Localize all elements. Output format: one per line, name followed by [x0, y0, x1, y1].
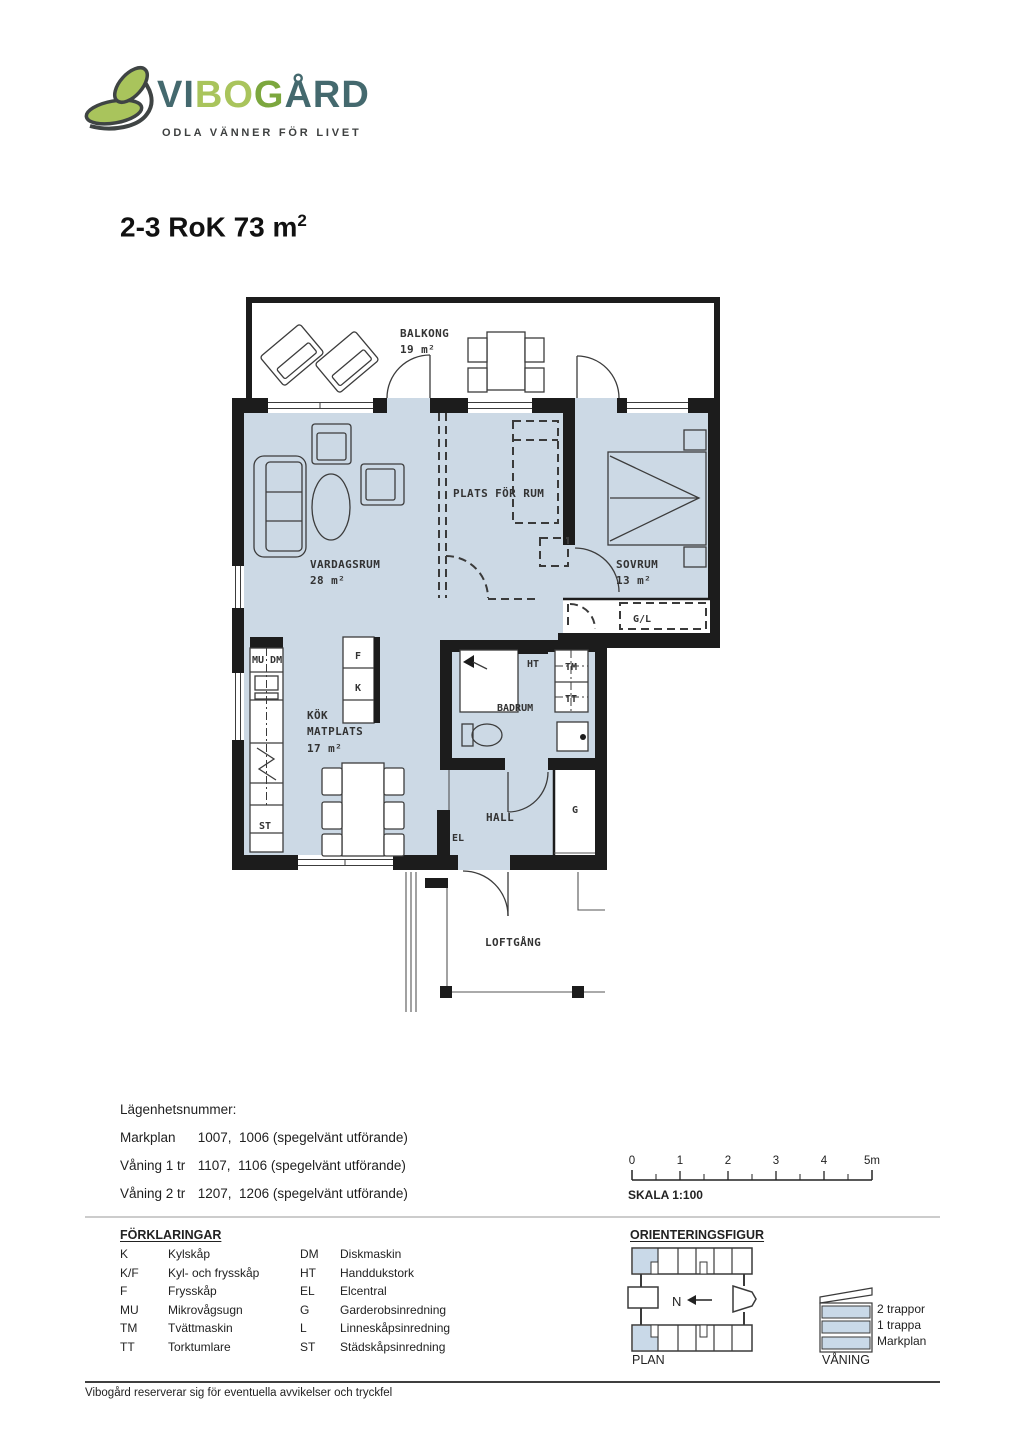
legend-desc: Elcentral — [340, 1284, 387, 1298]
legend-desc: Kyl- och frysskåp — [168, 1266, 259, 1280]
brand-part-vi: VI — [157, 74, 195, 116]
f-marker: F — [355, 651, 361, 662]
legend-code: DM — [300, 1245, 340, 1264]
legend-code: K — [120, 1245, 168, 1264]
legend-code: TM — [120, 1319, 168, 1338]
title-superscript: 2 — [297, 211, 306, 230]
north-arrow-icon: N — [672, 1294, 712, 1309]
apartment-ids: 1207, 1206 (spegelvänt utförande) — [198, 1186, 408, 1201]
apartment-row: Våning 1 tr 1107, 1106 (spegelvänt utför… — [120, 1158, 408, 1173]
legend-column-left: KKylskåp K/FKyl- och frysskåp FFrysskåp … — [120, 1245, 259, 1356]
legend-code: F — [120, 1282, 168, 1301]
sovrum-area: 13 m² — [616, 574, 651, 587]
legend-row: MUMikrovågsugn — [120, 1301, 259, 1320]
page-title: 2-3 RoK 73 m2 — [120, 211, 307, 243]
balkong-area: 19 m² — [400, 343, 435, 356]
legend-row: FFrysskåp — [120, 1282, 259, 1301]
scale-tick-2: 2 — [725, 1155, 731, 1167]
scale-tick-0: 0 — [629, 1155, 635, 1167]
legend-code: ST — [300, 1338, 340, 1357]
elevation-caption: VÅNING — [822, 1353, 870, 1367]
elevation-figure — [820, 1288, 872, 1352]
legend-code: TT — [120, 1338, 168, 1357]
apartment-ids: 1107, 1106 (spegelvänt utförande) — [198, 1158, 406, 1173]
vardagsrum-area: 28 m² — [310, 574, 345, 587]
balkong-label: BALKONG — [400, 327, 449, 340]
matplats-label: MATPLATS — [307, 725, 363, 738]
gl-marker: G/L — [633, 614, 651, 625]
kok-label: KÖK — [307, 708, 328, 722]
orientation-plan-caption: PLAN — [632, 1353, 665, 1367]
legend-column-right: DMDiskmaskin HTHanddukstork ELElcentral … — [300, 1245, 450, 1356]
legend-desc: Handdukstork — [340, 1266, 414, 1280]
orientation-heading: ORIENTERINGSFIGUR — [630, 1228, 764, 1242]
scale-bar: 0 1 2 3 4 5m — [629, 1155, 880, 1180]
brand-tagline: ODLA VÄNNER FÖR LIVET — [162, 127, 362, 139]
legend-desc: Städskåpsinredning — [340, 1340, 445, 1354]
apartment-numbers-heading: Lägenhetsnummer: — [120, 1102, 408, 1117]
legend-row: K/FKyl- och frysskåp — [120, 1264, 259, 1283]
loftgang-label: LOFTGÅNG — [485, 936, 541, 949]
legend-row: ELElcentral — [300, 1282, 450, 1301]
mu-dm-marker: MU DM — [252, 655, 282, 666]
legend-heading: FÖRKLARINGAR — [120, 1228, 221, 1242]
elevation-floor-1: 1 trappa — [877, 1318, 921, 1332]
legend-row: DMDiskmaskin — [300, 1245, 450, 1264]
legend-code: K/F — [120, 1264, 168, 1283]
sovrum-label: SOVRUM — [616, 558, 658, 571]
legend-desc: Frysskåp — [168, 1284, 217, 1298]
badrum-label: BADRUM — [497, 703, 533, 714]
plats-for-rum-label: PLATS FÖR RUM — [453, 486, 544, 500]
legend-row: TMTvättmaskin — [120, 1319, 259, 1338]
floorplan-page: BALKONG 19 m² VARDAGSRUM 28 m² PLATS FÖR… — [0, 0, 1024, 1449]
elevation-floor-2: 2 trappor — [877, 1302, 925, 1316]
el-marker: EL — [452, 833, 464, 844]
footer-disclaimer: Vibogård reserverar sig för eventuella a… — [85, 1387, 392, 1399]
legend-code: L — [300, 1319, 340, 1338]
scale-tick-1: 1 — [677, 1155, 683, 1167]
brand-part-bo: BO — [195, 74, 254, 116]
kok-area: 17 m² — [307, 742, 342, 755]
legend-row: HTHanddukstork — [300, 1264, 450, 1283]
tm-marker: TM — [565, 662, 577, 673]
k-marker: K — [355, 683, 361, 694]
scale-tick-5: 5m — [864, 1155, 880, 1167]
st-marker: ST — [259, 821, 271, 832]
legend-desc: Diskmaskin — [340, 1247, 401, 1261]
legend-desc: Garderobsinredning — [340, 1303, 446, 1317]
legend-desc: Linneskåpsinredning — [340, 1321, 450, 1335]
scale-tick-3: 3 — [773, 1155, 779, 1167]
orientation-figure: N — [628, 1248, 756, 1351]
scale-caption: SKALA 1:100 — [628, 1188, 703, 1202]
legend-row: TTTorktumlare — [120, 1338, 259, 1357]
elevation-floor-0: Markplan — [877, 1334, 926, 1348]
legend-code: MU — [120, 1301, 168, 1320]
apartment-row: Markplan 1007, 1006 (spegelvänt utförand… — [120, 1130, 408, 1145]
apartment-row: Våning 2 tr 1207, 1206 (spegelvänt utför… — [120, 1186, 408, 1201]
ht-marker: HT — [527, 659, 539, 670]
g-marker: G — [572, 805, 578, 816]
legend-row: STStädskåpsinredning — [300, 1338, 450, 1357]
legend-row: KKylskåp — [120, 1245, 259, 1264]
brand-part-g: G — [254, 74, 285, 116]
floor-label: Våning 2 tr — [120, 1186, 194, 1201]
legend-row: LLinneskåpsinredning — [300, 1319, 450, 1338]
apartment-numbers: Lägenhetsnummer: Markplan 1007, 1006 (sp… — [120, 1102, 408, 1214]
brand-part-ard: ÅRD — [284, 74, 369, 116]
svg-text:N: N — [672, 1294, 681, 1309]
legend-desc: Mikrovågsugn — [168, 1303, 243, 1317]
scale-tick-4: 4 — [821, 1155, 828, 1167]
apartment-ids: 1007, 1006 (spegelvänt utförande) — [198, 1130, 408, 1145]
brand-logo: VIBOGÅRD — [157, 76, 370, 114]
legend-desc: Torktumlare — [168, 1340, 231, 1354]
floor-label: Våning 1 tr — [120, 1158, 194, 1173]
legend-code: EL — [300, 1282, 340, 1301]
floor-label: Markplan — [120, 1130, 194, 1145]
legend-desc: Kylskåp — [168, 1247, 210, 1261]
tt-marker: TT — [565, 694, 577, 705]
vardagsrum-label: VARDAGSRUM — [310, 558, 380, 571]
legend-code: G — [300, 1301, 340, 1320]
legend-desc: Tvättmaskin — [168, 1321, 233, 1335]
hall-label: HALL — [486, 811, 514, 824]
legend-row: GGarderobsinredning — [300, 1301, 450, 1320]
legend-code: HT — [300, 1264, 340, 1283]
logo-leaf-icon — [85, 62, 154, 128]
